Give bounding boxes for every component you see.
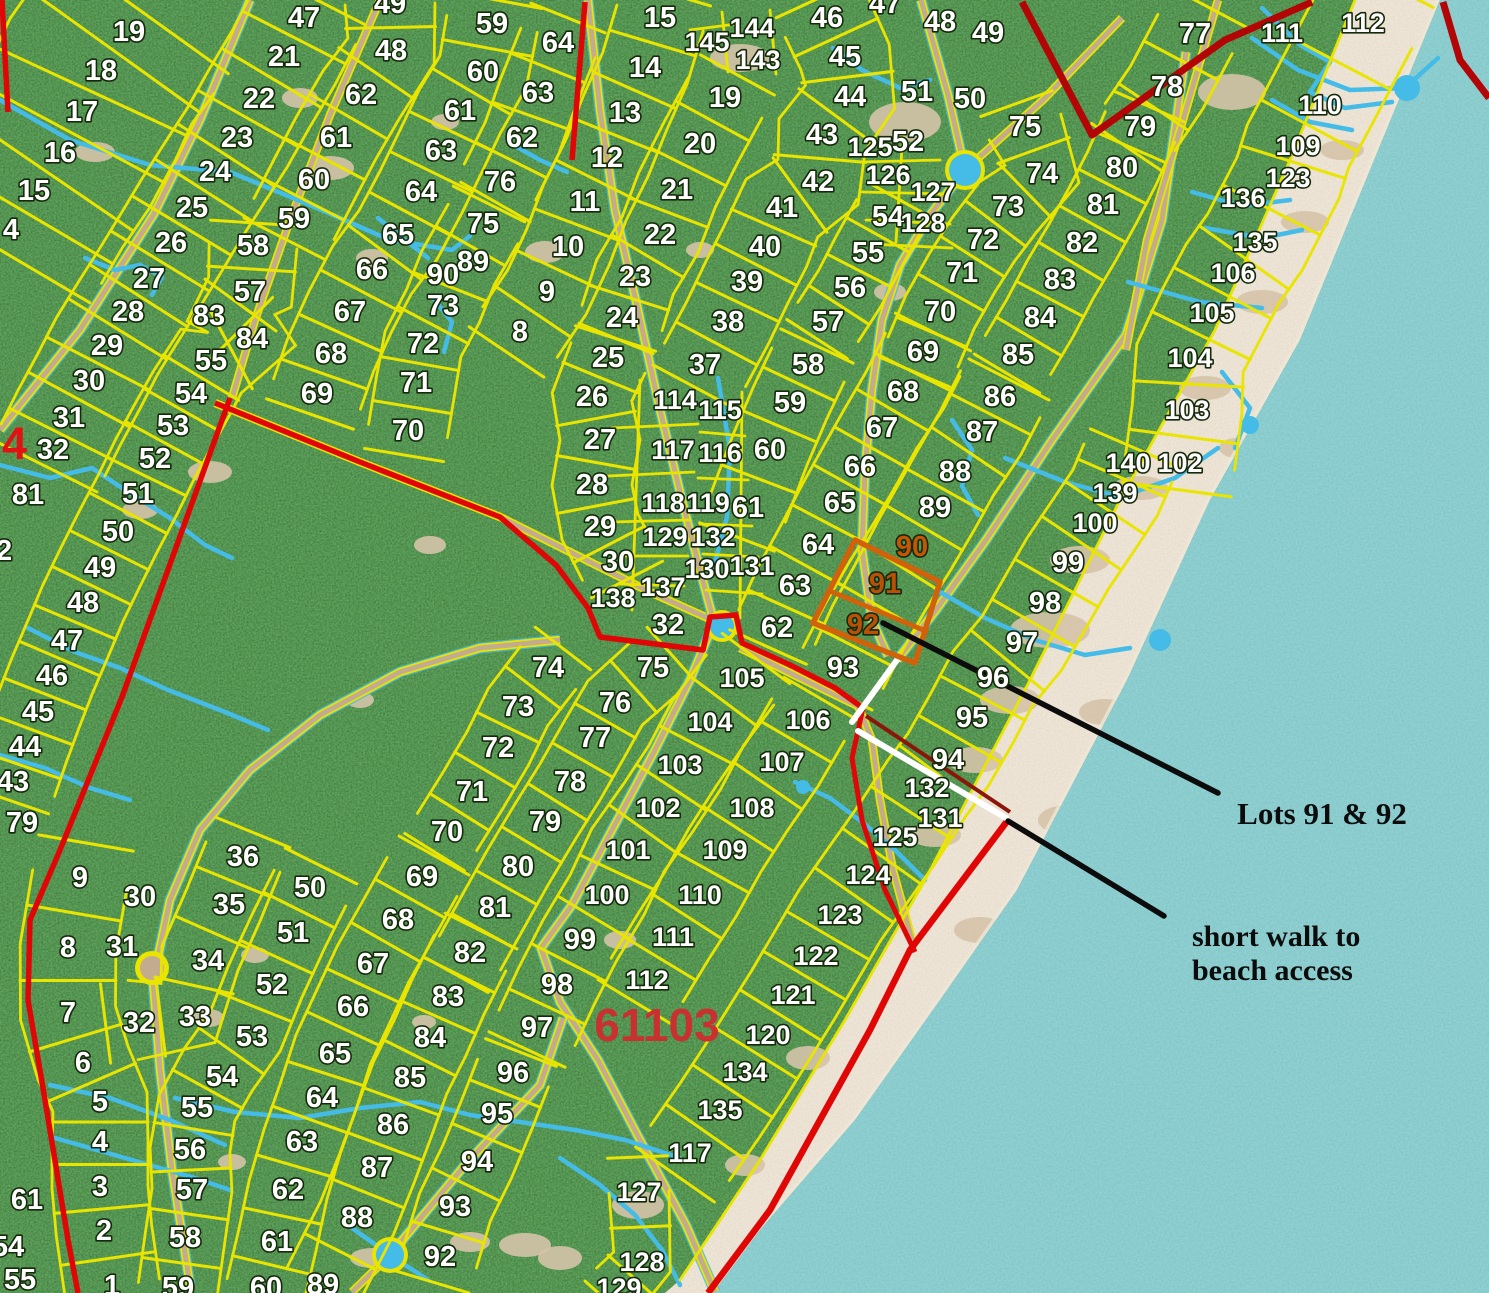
lot-label-85: 85: [394, 1062, 426, 1094]
lot-label-78: 78: [554, 766, 586, 798]
lot-label-69: 69: [406, 861, 438, 893]
lot-label-75: 75: [1009, 111, 1041, 143]
lot-label-129: 129: [642, 522, 687, 552]
lot-label-51: 51: [277, 917, 309, 949]
lot-label-15: 15: [18, 175, 50, 207]
lot-label-55: 55: [852, 237, 884, 269]
lot-label-73: 73: [502, 691, 534, 723]
lot-label-30: 30: [73, 365, 105, 397]
lot-label-47: 47: [869, 0, 901, 20]
lot-label-76: 76: [599, 687, 631, 719]
lot-label-38: 38: [712, 306, 744, 338]
lot-label-123: 123: [817, 900, 862, 930]
lot-label-140: 140: [1105, 448, 1150, 478]
lot-label-70: 70: [431, 816, 463, 848]
lot-label-72: 72: [967, 224, 999, 256]
lot-label-145: 145: [684, 27, 729, 57]
lot-label-46: 46: [811, 2, 843, 34]
lot-label-59: 59: [162, 1272, 194, 1293]
lot-label-81: 81: [479, 892, 511, 924]
lot-label-131: 131: [729, 551, 774, 581]
lot-label-67: 67: [334, 296, 366, 328]
lot-label-127: 127: [616, 1177, 661, 1207]
lot-label-83: 83: [432, 981, 464, 1013]
lot-label-78: 78: [1151, 71, 1183, 103]
lot-label-112: 112: [625, 965, 669, 995]
lot-label-60: 60: [467, 56, 499, 88]
plat-map-canvas: 1918171615447212223242526272829303132494…: [0, 0, 1489, 1293]
lot-label-8: 8: [512, 316, 528, 348]
pond: [796, 780, 810, 794]
lot-label-144: 144: [729, 13, 774, 43]
lot-label-92: 92: [847, 609, 879, 641]
lot-label-102: 102: [635, 793, 680, 823]
lot-label-63: 63: [779, 570, 811, 602]
lot-label-110: 110: [1298, 90, 1342, 120]
lot-label-88: 88: [341, 1202, 373, 1234]
lot-label-79: 79: [6, 807, 38, 839]
lot-label-89: 89: [457, 246, 489, 278]
lot-label-90: 90: [427, 259, 459, 291]
plat-map-aerial: 1918171615447212223242526272829303132494…: [0, 0, 1489, 1293]
lot-label-62: 62: [506, 122, 538, 154]
lot-label-25: 25: [592, 342, 624, 374]
lot-label-72: 72: [407, 328, 439, 360]
lot-label-54: 54: [206, 1061, 238, 1093]
lot-label-57: 57: [812, 306, 844, 338]
lot-label-53: 53: [157, 410, 189, 442]
lot-label-9: 9: [72, 862, 88, 894]
lot-label-112: 112: [1341, 8, 1385, 38]
lot-label-114: 114: [653, 385, 697, 415]
lot-label-54: 54: [175, 378, 207, 410]
lot-label-69: 69: [301, 378, 333, 410]
lot-label-13: 13: [609, 97, 641, 129]
lot-label-90: 90: [896, 531, 928, 563]
annotation-beach-line2: beach access: [1192, 954, 1353, 987]
lot-label-73: 73: [427, 290, 459, 322]
lot-label-123: 123: [1265, 163, 1310, 193]
lot-label-81: 81: [1087, 189, 1119, 221]
lot-label-61: 61: [11, 1184, 43, 1216]
lot-label-16: 16: [44, 137, 76, 169]
lot-label-63: 63: [425, 135, 457, 167]
lot-label-32: 32: [37, 434, 69, 466]
lot-label-137: 137: [640, 572, 685, 602]
lot-label-138: 138: [590, 583, 635, 613]
pond: [1394, 75, 1420, 101]
lot-label-68: 68: [887, 376, 919, 408]
lot-label-55: 55: [195, 345, 227, 377]
lot-label-80: 80: [1106, 152, 1138, 184]
lot-label-135: 135: [697, 1095, 742, 1125]
lot-label-127: 127: [910, 177, 955, 207]
lot-label-30: 30: [602, 546, 634, 578]
lot-label-26: 26: [155, 227, 187, 259]
lot-label-36: 36: [227, 841, 259, 873]
lot-label-19: 19: [709, 82, 741, 114]
lot-label-14: 14: [629, 52, 661, 84]
lot-label-42: 42: [802, 166, 834, 198]
lot-label-71: 71: [456, 776, 488, 808]
lot-label-93: 93: [827, 652, 859, 684]
lot-label-48: 48: [67, 587, 99, 619]
lot-label-91: 91: [869, 568, 901, 600]
lot-label-53: 53: [236, 1021, 268, 1053]
lot-label-106: 106: [1210, 258, 1255, 288]
lot-label-83: 83: [1044, 264, 1076, 296]
sand-clearing: [538, 1246, 582, 1270]
lot-label-122: 122: [793, 941, 838, 971]
lot-label-49: 49: [84, 552, 116, 584]
lot-label-60: 60: [754, 434, 786, 466]
lot-label-135: 135: [1232, 227, 1277, 257]
lot-label-71: 71: [946, 257, 978, 289]
sand-clearing: [1198, 74, 1266, 110]
lot-label-27: 27: [584, 424, 616, 456]
lot-label-21: 21: [268, 41, 300, 73]
lot-label-74: 74: [1026, 158, 1058, 190]
lot-label-84: 84: [1024, 302, 1056, 334]
lot-label-10: 10: [552, 231, 584, 263]
lot-label-45: 45: [22, 696, 54, 728]
lot-label-34: 34: [192, 945, 224, 977]
lot-label-22: 22: [243, 83, 275, 115]
lot-label-28: 28: [576, 469, 608, 501]
lot-label-26: 26: [576, 381, 608, 413]
lot-label-95: 95: [481, 1098, 513, 1130]
lot-label-109: 109: [702, 835, 747, 865]
lot-label-82: 82: [454, 937, 486, 969]
annotation-beach-access: short walk tobeach access: [1192, 920, 1360, 987]
lot-label-22: 22: [644, 219, 676, 251]
lot-label-111: 111: [652, 922, 694, 952]
lot-label-59: 59: [476, 8, 508, 40]
lot-label-58: 58: [792, 349, 824, 381]
lot-label-46: 46: [36, 660, 68, 692]
lot-label-83: 83: [193, 300, 225, 332]
lot-label-121: 121: [770, 980, 815, 1010]
lot-label-43: 43: [0, 766, 29, 798]
lot-label-58: 58: [169, 1222, 201, 1254]
lot-label-134: 134: [722, 1057, 767, 1087]
lot-label-30: 30: [124, 881, 156, 913]
lot-label-25: 25: [176, 192, 208, 224]
lot-label-64: 64: [802, 529, 834, 561]
lot-label-18: 18: [85, 55, 117, 87]
lot-label-143: 143: [735, 45, 780, 75]
lot-label-39: 39: [731, 266, 763, 298]
lot-label-84: 84: [236, 323, 268, 355]
lot-label-73: 73: [992, 191, 1024, 223]
lot-label-59: 59: [774, 387, 806, 419]
lot-label-126: 126: [865, 160, 910, 190]
lot-label-49: 49: [374, 0, 406, 20]
lot-label-65: 65: [319, 1038, 351, 1070]
lot-label-75: 75: [467, 208, 499, 240]
lot-label-50: 50: [102, 516, 134, 548]
lot-label-103: 103: [657, 750, 702, 780]
lot-label-17: 17: [66, 96, 98, 128]
lot-label-67: 67: [357, 948, 389, 980]
lot-label-15: 15: [644, 2, 676, 34]
lot-label-84: 84: [414, 1022, 446, 1054]
lot-label-23: 23: [221, 122, 253, 154]
lot-label-136: 136: [1220, 183, 1265, 213]
lot-label-102: 102: [1157, 448, 1202, 478]
lot-label-52: 52: [256, 969, 288, 1001]
boundary-number-label: 4: [2, 418, 27, 470]
lot-label-51: 51: [901, 76, 933, 108]
lot-label-31: 31: [53, 402, 85, 434]
lot-label-60: 60: [250, 1272, 282, 1293]
lot-label-55: 55: [4, 1264, 36, 1293]
lot-label-82: 82: [1066, 227, 1098, 259]
lot-label-75: 75: [637, 652, 669, 684]
lot-label-5: 5: [92, 1086, 108, 1118]
lot-label-62: 62: [761, 612, 793, 644]
lot-label-125: 125: [872, 822, 917, 852]
lot-label-67: 67: [866, 412, 898, 444]
lot-label-50: 50: [294, 872, 326, 904]
lot-label-6: 6: [75, 1047, 91, 1079]
lot-label-111: 111: [1261, 18, 1303, 48]
lot-label-129: 129: [596, 1273, 641, 1293]
lot-label-62: 62: [345, 79, 377, 111]
annotation-beach-line1: short walk to: [1192, 920, 1360, 953]
lot-label-115: 115: [698, 395, 742, 425]
lot-label-68: 68: [315, 338, 347, 370]
lot-label-33: 33: [179, 1001, 211, 1033]
lot-label-48: 48: [924, 6, 956, 38]
lot-label-98: 98: [1029, 587, 1061, 619]
lot-label-27: 27: [133, 263, 165, 295]
lot-label-66: 66: [337, 991, 369, 1023]
annotation-lots-91-92: Lots 91 & 92: [1237, 797, 1407, 832]
lot-label-52: 52: [139, 443, 171, 475]
parcel-number-label: 61103: [594, 998, 719, 1052]
lot-label-94: 94: [461, 1146, 493, 1178]
lot-label-55: 55: [181, 1092, 213, 1124]
lot-label-57: 57: [234, 276, 266, 308]
lot-label-125: 125: [847, 132, 892, 162]
lot-label-62: 62: [272, 1174, 304, 1206]
lot-label-132: 132: [690, 522, 735, 552]
lot-label-41: 41: [766, 192, 798, 224]
lot-label-66: 66: [844, 451, 876, 483]
lot-label-124: 124: [845, 860, 890, 890]
lot-label-11: 11: [570, 186, 601, 218]
lot-label-128: 128: [900, 208, 945, 238]
lot-label-56: 56: [174, 1134, 206, 1166]
lot-label-47: 47: [51, 625, 83, 657]
lot-label-4: 4: [92, 1126, 108, 1158]
lot-label-65: 65: [382, 219, 414, 251]
lot-label-108: 108: [729, 793, 774, 823]
pond: [1149, 629, 1171, 651]
lot-label-24: 24: [199, 156, 231, 188]
lot-label-97: 97: [521, 1012, 553, 1044]
lot-label-99: 99: [1052, 547, 1084, 579]
sand-clearing: [414, 536, 446, 554]
lot-label-97: 97: [1006, 627, 1038, 659]
lot-label-105: 105: [719, 663, 764, 693]
lot-label-116: 116: [698, 438, 742, 468]
lot-label-51: 51: [122, 478, 154, 510]
lot-label-63: 63: [286, 1126, 318, 1158]
lot-label-23: 23: [619, 261, 651, 293]
lot-label-89: 89: [919, 492, 951, 524]
lot-label-29: 29: [91, 330, 123, 362]
lot-label-20: 20: [684, 128, 716, 160]
lot-label-77: 77: [1179, 18, 1211, 50]
lot-label-70: 70: [924, 296, 956, 328]
lot-label-105: 105: [1189, 298, 1234, 328]
lot-label-43: 43: [806, 119, 838, 151]
lot-label-79: 79: [1124, 111, 1156, 143]
lot-label-29: 29: [584, 511, 616, 543]
lot-label-44: 44: [834, 81, 866, 113]
pond: [376, 1241, 404, 1269]
lot-label-100: 100: [584, 880, 629, 910]
lot-label-80: 80: [502, 851, 534, 883]
lot-label-2: 2: [96, 1215, 112, 1247]
lot-label-70: 70: [392, 415, 424, 447]
pond: [1241, 416, 1259, 434]
lot-label-87: 87: [361, 1152, 393, 1184]
lot-label-40: 40: [749, 231, 781, 263]
lot-label-104: 104: [1167, 343, 1212, 373]
lot-label-103: 103: [1164, 395, 1209, 425]
lot-label-61: 61: [261, 1226, 293, 1258]
lot-label-86: 86: [377, 1109, 409, 1141]
lot-label-64: 64: [542, 27, 574, 59]
lot-label-93: 93: [439, 1191, 471, 1223]
lot-label-64: 64: [405, 176, 437, 208]
lot-label-89: 89: [307, 1269, 339, 1293]
lot-label-57: 57: [176, 1174, 208, 1206]
lot-label-4: 4: [3, 214, 19, 246]
lot-label-8: 8: [60, 932, 76, 964]
lot-label-99: 99: [564, 924, 596, 956]
lot-label-31: 31: [106, 931, 138, 963]
lot-label-44: 44: [9, 731, 41, 763]
lot-label-12: 12: [591, 142, 623, 174]
lot-label-63: 63: [522, 77, 554, 109]
lot-label-101: 101: [605, 835, 650, 865]
lot-label-19: 19: [113, 16, 145, 48]
lot-label-98: 98: [541, 969, 573, 1001]
lot-label-37: 37: [689, 349, 721, 381]
lot-label-24: 24: [606, 302, 638, 334]
lot-label-45: 45: [829, 41, 861, 73]
lot-label-104: 104: [687, 707, 732, 737]
lot-label-7: 7: [60, 997, 76, 1029]
lot-label-119: 119: [686, 488, 730, 518]
lot-label-96: 96: [977, 662, 1009, 694]
lot-label-60: 60: [298, 164, 330, 196]
lot-label-66: 66: [356, 254, 388, 286]
lot-label-139: 139: [1092, 478, 1137, 508]
lot-label-88: 88: [939, 456, 971, 488]
lot-label-76: 76: [484, 166, 516, 198]
lot-label-49: 49: [972, 17, 1004, 49]
lot-label-68: 68: [382, 904, 414, 936]
lot-label-65: 65: [824, 487, 856, 519]
lot-label-54: 54: [872, 201, 904, 233]
lot-label-132: 132: [904, 773, 949, 803]
lot-label-130: 130: [684, 554, 729, 584]
lot-label-69: 69: [907, 336, 939, 368]
lot-label-32: 32: [123, 1007, 155, 1039]
lot-label-64: 64: [306, 1082, 338, 1114]
lot-label-61: 61: [320, 122, 352, 154]
lot-label-109: 109: [1275, 131, 1320, 161]
lot-label-21: 21: [661, 174, 693, 206]
lot-label-50: 50: [954, 83, 986, 115]
lot-label-79: 79: [529, 806, 561, 838]
lot-label-72: 72: [482, 732, 514, 764]
lot-label-59: 59: [278, 203, 310, 235]
lot-label-94: 94: [932, 744, 964, 776]
lot-label-92: 92: [424, 1241, 456, 1273]
lot-label-61: 61: [444, 95, 476, 127]
lot-label-106: 106: [785, 705, 830, 735]
lot-label-1: 1: [104, 1270, 120, 1293]
lot-label-3: 3: [92, 1171, 108, 1203]
lot-label-117: 117: [651, 435, 695, 465]
lot-label-48: 48: [375, 35, 407, 67]
lot-label-110: 110: [678, 880, 722, 910]
lot-label-86: 86: [984, 381, 1016, 413]
lot-label-71: 71: [400, 367, 432, 399]
lot-label-87: 87: [966, 416, 998, 448]
lot-label-100: 100: [1072, 508, 1117, 538]
lot-label-9: 9: [539, 276, 555, 308]
lot-label-56: 56: [834, 272, 866, 304]
lot-label-52: 52: [892, 126, 924, 158]
lot-label-131: 131: [917, 803, 962, 833]
lot-label-96: 96: [497, 1057, 529, 1089]
lot-label-54: 54: [0, 1231, 24, 1263]
lot-label-85: 85: [1002, 339, 1034, 371]
lot-label-107: 107: [759, 747, 804, 777]
lot-label-77: 77: [579, 722, 611, 754]
lot-label-117: 117: [668, 1138, 712, 1168]
lot-label-74: 74: [532, 652, 564, 684]
lot-label-58: 58: [237, 230, 269, 262]
lot-label-118: 118: [641, 488, 685, 518]
lot-label-47: 47: [288, 2, 320, 34]
lot-label-32: 32: [652, 609, 684, 641]
lot-label-35: 35: [213, 889, 245, 921]
lot-label-81: 81: [12, 479, 44, 511]
lot-label-61: 61: [732, 492, 764, 524]
lot-label-120: 120: [745, 1020, 790, 1050]
lot-label-95: 95: [956, 702, 988, 734]
lot-label-2: 2: [0, 535, 12, 567]
lot-label-28: 28: [112, 296, 144, 328]
